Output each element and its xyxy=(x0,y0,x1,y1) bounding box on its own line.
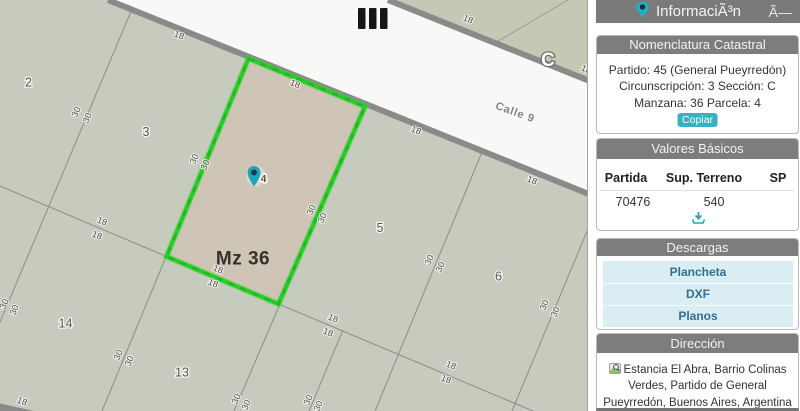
svg-text:3: 3 xyxy=(143,125,150,139)
svg-text:2: 2 xyxy=(25,76,32,90)
svg-text:4: 4 xyxy=(261,173,267,185)
svg-text:C: C xyxy=(541,50,555,71)
svg-text:6: 6 xyxy=(495,270,502,284)
svg-text:Mz 36: Mz 36 xyxy=(216,249,270,270)
svg-text:14: 14 xyxy=(59,317,73,331)
svg-text:13: 13 xyxy=(175,366,189,380)
svg-text:5: 5 xyxy=(377,221,384,235)
